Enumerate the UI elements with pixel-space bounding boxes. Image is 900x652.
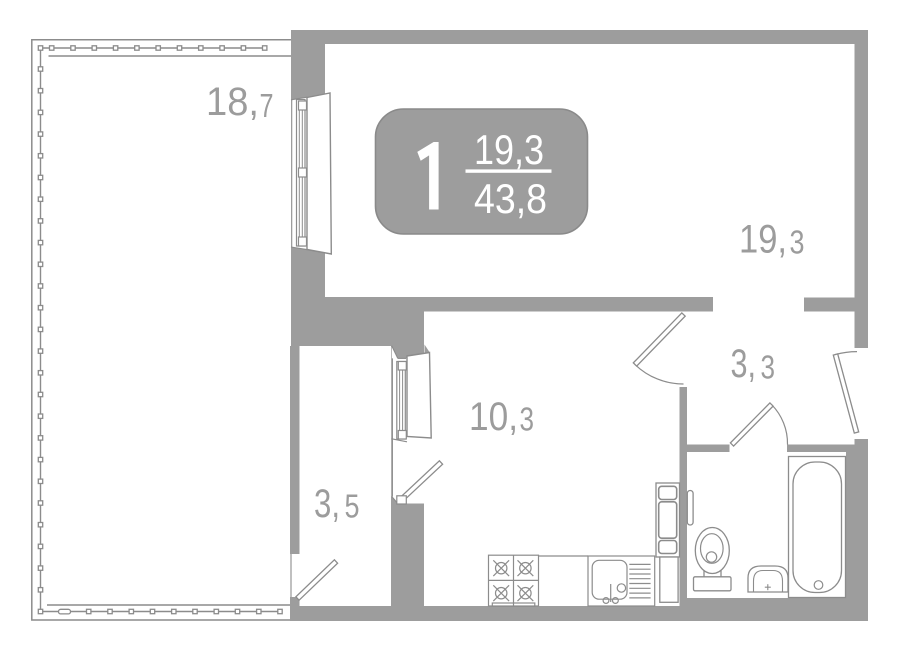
svg-text:3: 3: [761, 349, 776, 386]
svg-text:10,: 10,: [469, 395, 518, 439]
svg-text:19,3: 19,3: [474, 126, 544, 173]
svg-text:5: 5: [345, 488, 360, 525]
svg-text:43,8: 43,8: [474, 175, 547, 222]
svg-text:3,: 3,: [314, 482, 340, 526]
svg-text:3: 3: [520, 401, 535, 438]
svg-text:3: 3: [790, 224, 805, 261]
svg-text:3,: 3,: [731, 342, 757, 386]
svg-text:18,: 18,: [206, 80, 259, 124]
svg-text:7: 7: [260, 87, 274, 124]
svg-text:19,: 19,: [739, 218, 787, 262]
